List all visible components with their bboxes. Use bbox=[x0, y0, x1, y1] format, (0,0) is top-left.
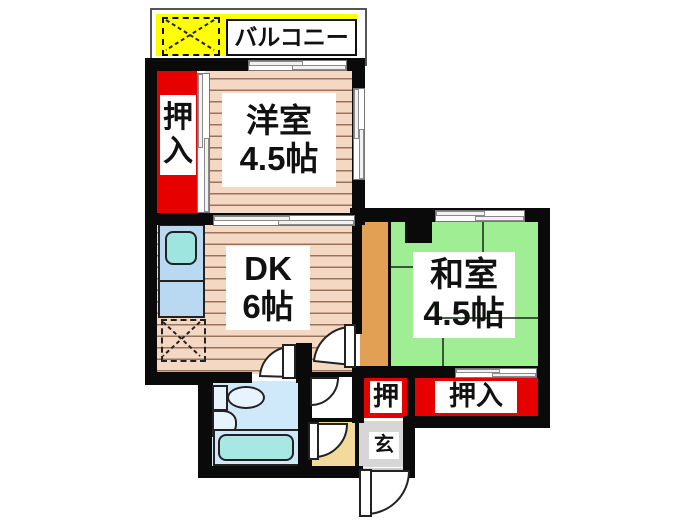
dk-label-box: DK 6帖 bbox=[226, 246, 310, 330]
door-swing-layer bbox=[0, 0, 700, 525]
closet-right-label-box: 押入 bbox=[435, 381, 517, 413]
dk-size: 6帖 bbox=[242, 288, 293, 326]
western-room-size: 4.5帖 bbox=[240, 140, 319, 178]
hallway-door-arc bbox=[311, 378, 338, 405]
closet-small-label: 押 bbox=[373, 382, 399, 412]
japanese-room-name: 和室 bbox=[430, 256, 498, 295]
bathroom-door-leaf bbox=[283, 345, 295, 378]
entrance-door-leaf bbox=[360, 470, 371, 516]
hatch-x-marks bbox=[163, 20, 214, 356]
western-room-label-box: 洋室 4.5帖 bbox=[222, 93, 336, 187]
entrance-label: 玄 bbox=[374, 434, 394, 457]
closet-right-label: 押入 bbox=[449, 381, 503, 412]
japanese-room-size: 4.5帖 bbox=[423, 295, 504, 334]
western-room-name: 洋室 bbox=[246, 102, 312, 140]
floorplan: バルコニー bbox=[0, 0, 700, 525]
closet-left-label: 押入 bbox=[162, 101, 194, 170]
japanese-room-label-box: 和室 4.5帖 bbox=[413, 252, 515, 338]
entrance-label-box: 玄 bbox=[369, 432, 399, 459]
corridor-door-leaf bbox=[345, 325, 355, 367]
vestibule-door-leaf bbox=[309, 423, 318, 459]
entrance-door-arc bbox=[366, 471, 409, 514]
closet-left-label-box: 押入 bbox=[160, 95, 196, 175]
closet-small-label-box: 押 bbox=[370, 381, 402, 413]
dk-name: DK bbox=[244, 250, 292, 288]
